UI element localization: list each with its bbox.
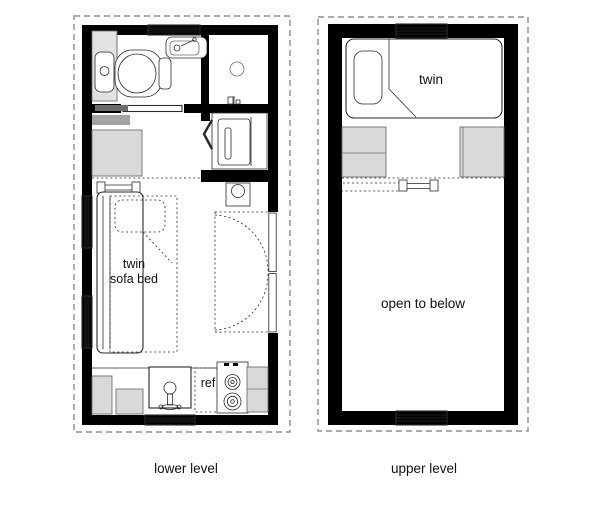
- open-to-below-label: open to below: [381, 296, 465, 311]
- stove: [217, 362, 248, 413]
- french-doors: [215, 212, 278, 333]
- floor-plan-drawing: twin sofa bed ref: [0, 0, 600, 516]
- kitchen-sink: [149, 367, 191, 410]
- sofa-bed-label-line2: sofa bed: [110, 272, 158, 286]
- vanity-sink: [95, 52, 114, 92]
- sofa-bed: twin sofa bed: [97, 192, 177, 353]
- refrigerator: ref: [195, 368, 218, 412]
- closet: [92, 130, 142, 176]
- utility-closet: [201, 113, 278, 182]
- lavatory-sink: [166, 37, 207, 58]
- bed-pillow: [354, 51, 382, 104]
- bathroom-shelf-dark: [95, 105, 128, 111]
- water-heater-appliance: [212, 113, 267, 169]
- kitchen-cabinet-right: [247, 367, 268, 412]
- storage-box-right: [460, 127, 504, 177]
- upper-level-caption: upper level: [391, 461, 457, 476]
- kitchen: ref: [92, 362, 268, 414]
- bifold-door: [204, 120, 212, 149]
- storage-box-left: [342, 127, 386, 177]
- kitchen-cabinet-left: [92, 376, 112, 414]
- french-door-swing-dashed: [215, 212, 268, 332]
- loft-ladder: [97, 182, 140, 193]
- floor-plan-page: twin sofa bed ref: [0, 0, 600, 516]
- toilet: [115, 50, 171, 97]
- shower-valve: [228, 96, 240, 104]
- twin-bed: twin: [346, 39, 502, 118]
- refrigerator-label: ref: [201, 376, 216, 390]
- twin-bed-label: twin: [419, 72, 443, 87]
- kitchen-cabinet-left-2: [116, 389, 143, 414]
- bathroom: [92, 31, 244, 104]
- heater: [226, 183, 250, 206]
- pocket-door: [123, 106, 182, 112]
- lower-level-plan: twin sofa bed ref: [74, 16, 290, 476]
- lower-level-caption: lower level: [154, 461, 218, 476]
- refrigerator-outline-dashed: [195, 368, 218, 412]
- bathroom-shelf-gray: [92, 115, 130, 125]
- upper-level-plan: twin open to below upper level: [318, 17, 528, 476]
- shower-drain: [230, 62, 244, 76]
- sofa-bed-label-line1: twin: [123, 257, 145, 271]
- shower: [228, 62, 244, 104]
